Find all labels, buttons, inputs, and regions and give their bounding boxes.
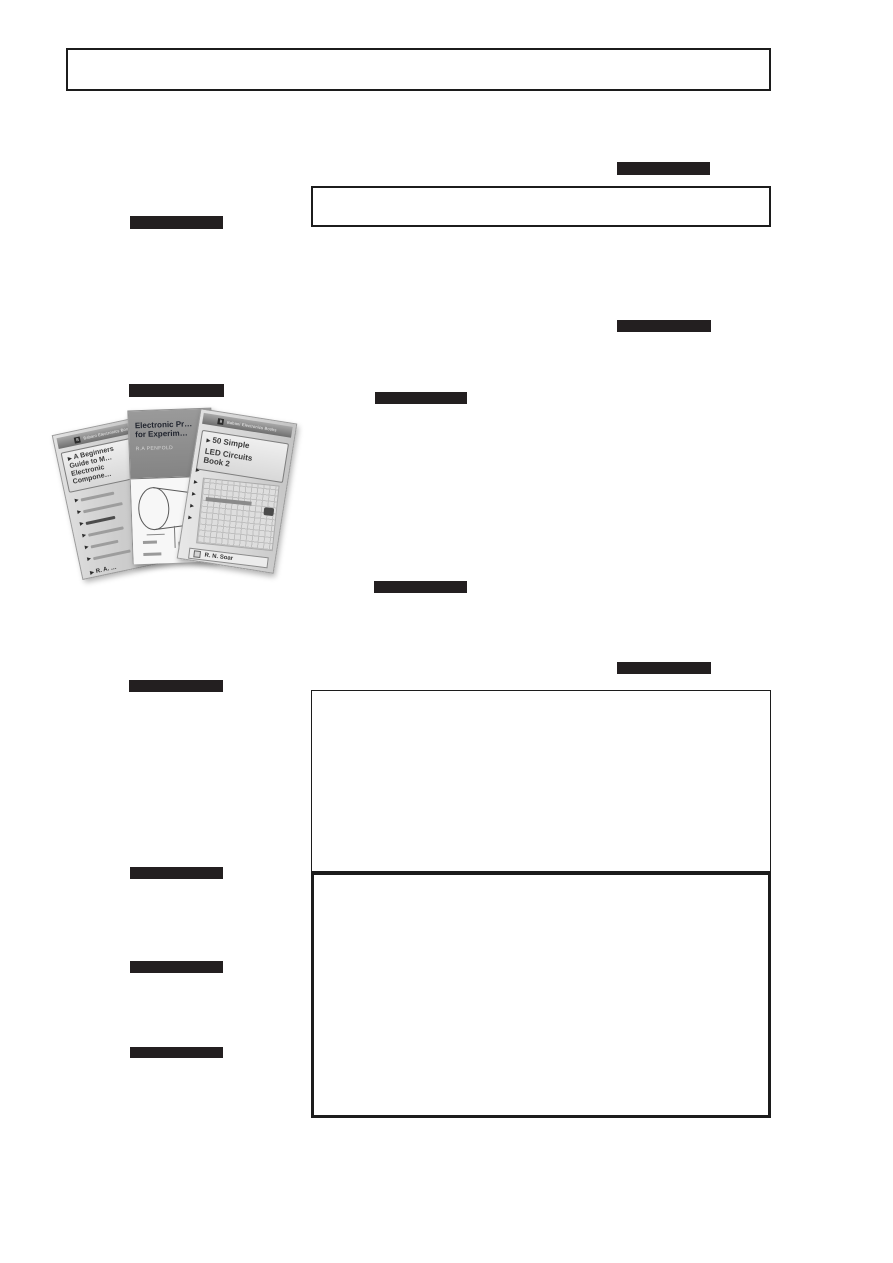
redacted-heading-bar (617, 320, 711, 332)
bullet-triangle-icon: ▶ (82, 532, 87, 539)
redacted-heading-bar (617, 662, 711, 674)
illegible-caption-line (206, 497, 252, 506)
redacted-heading-bar (375, 392, 467, 404)
book-author: R. N. Soar (188, 547, 269, 568)
redacted-heading-bar (130, 867, 223, 879)
redacted-heading-bar (374, 581, 467, 593)
redacted-heading-bar (617, 162, 710, 175)
breadboard-graphic (196, 477, 279, 551)
author-bullet-icon (193, 550, 201, 558)
bullet-triangle-icon: ▶ (195, 467, 200, 474)
books-photo: B Babani Electronics Books ▶A Beginners … (68, 407, 286, 577)
bullet-triangle-icon: ▶ (206, 438, 211, 445)
illegible-text-line (88, 526, 124, 536)
redacted-heading-bar (129, 384, 224, 397)
book-author-label: R. N. Soar (204, 552, 233, 561)
illegible-text-line (90, 539, 118, 548)
component-illustration (263, 507, 274, 516)
illegible-text-line (85, 515, 115, 524)
illegible-text-line (93, 549, 131, 560)
info-box (311, 186, 771, 227)
document-page: B Babani Electronics Books ▶A Beginners … (0, 0, 893, 1263)
book-author-label: R. A. … (95, 565, 117, 575)
top-notice-box (66, 48, 771, 91)
bullet-triangle-icon: ▶ (84, 544, 89, 551)
bullet-triangle-icon: ▶ (190, 503, 195, 510)
bullet-triangle-icon: ▶ (77, 509, 82, 516)
redacted-heading-bar (130, 961, 223, 973)
redacted-heading-bar (130, 216, 223, 229)
illegible-text-line (83, 502, 123, 513)
publisher-logo-icon: B (74, 436, 81, 443)
book-title: ▶50 Simple LED Circuits Book 2 (196, 430, 289, 483)
bullet-triangle-icon: ▶ (188, 515, 193, 522)
bullet-triangle-icon: ▶ (193, 479, 198, 486)
publisher-brand-label: Babani Electronics Books (227, 420, 277, 433)
bullet-triangle-icon: ▶ (192, 491, 197, 498)
illegible-text-line (80, 491, 114, 501)
redacted-heading-bar (129, 680, 223, 692)
bullet-triangle-icon: ▶ (67, 456, 72, 463)
bullet-triangle-icon: ▶ (87, 556, 92, 563)
redacted-heading-bar (130, 1047, 223, 1058)
order-form-box-upper (311, 690, 771, 872)
bullet-triangle-icon: ▶ (79, 521, 84, 528)
bullet-triangle-icon: ▶ (74, 497, 79, 504)
order-form-box-lower (311, 872, 771, 1118)
publisher-logo-icon: B (218, 418, 225, 425)
bullet-triangle-icon: ▶ (90, 569, 95, 576)
